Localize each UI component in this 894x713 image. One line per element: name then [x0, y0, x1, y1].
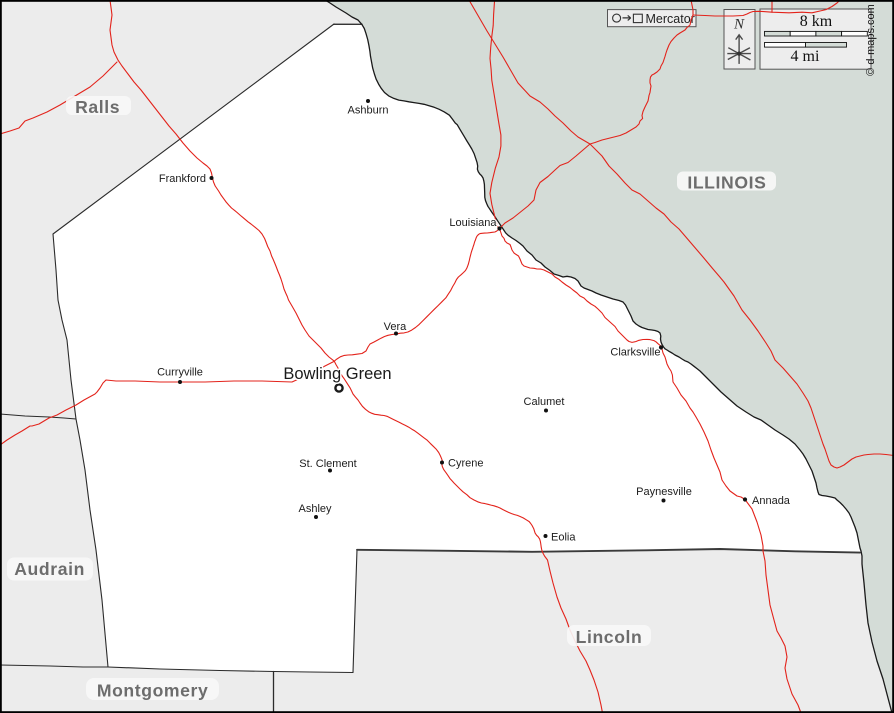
svg-text:4 mi: 4 mi — [791, 48, 820, 65]
svg-text:Mercator: Mercator — [646, 12, 695, 26]
svg-text:Eolia: Eolia — [551, 532, 576, 544]
svg-text:N: N — [733, 17, 745, 33]
svg-text:Bowling Green: Bowling Green — [283, 365, 391, 383]
svg-text:ILLINOIS: ILLINOIS — [687, 172, 766, 192]
svg-text:Frankford: Frankford — [159, 173, 206, 185]
svg-text:Ralls: Ralls — [75, 97, 120, 117]
svg-text:Clarksville: Clarksville — [610, 347, 660, 359]
svg-text:© d-maps.com: © d-maps.com — [865, 4, 877, 76]
svg-text:Vera: Vera — [384, 321, 408, 333]
svg-text:Audrain: Audrain — [14, 559, 85, 579]
svg-text:Louisiana: Louisiana — [449, 217, 497, 229]
svg-text:Paynesville: Paynesville — [636, 486, 692, 498]
svg-text:Lincoln: Lincoln — [576, 627, 643, 647]
svg-text:Montgomery: Montgomery — [97, 681, 209, 701]
svg-text:Annada: Annada — [752, 495, 791, 507]
svg-text:Cyrene: Cyrene — [448, 458, 483, 470]
svg-text:Curryville: Curryville — [157, 367, 203, 379]
svg-text:8 km: 8 km — [800, 13, 833, 30]
svg-text:Ashburn: Ashburn — [348, 105, 389, 117]
svg-text:Ashley: Ashley — [298, 503, 332, 515]
svg-text:St. Clement: St. Clement — [299, 458, 356, 470]
svg-text:Calumet: Calumet — [524, 396, 565, 408]
